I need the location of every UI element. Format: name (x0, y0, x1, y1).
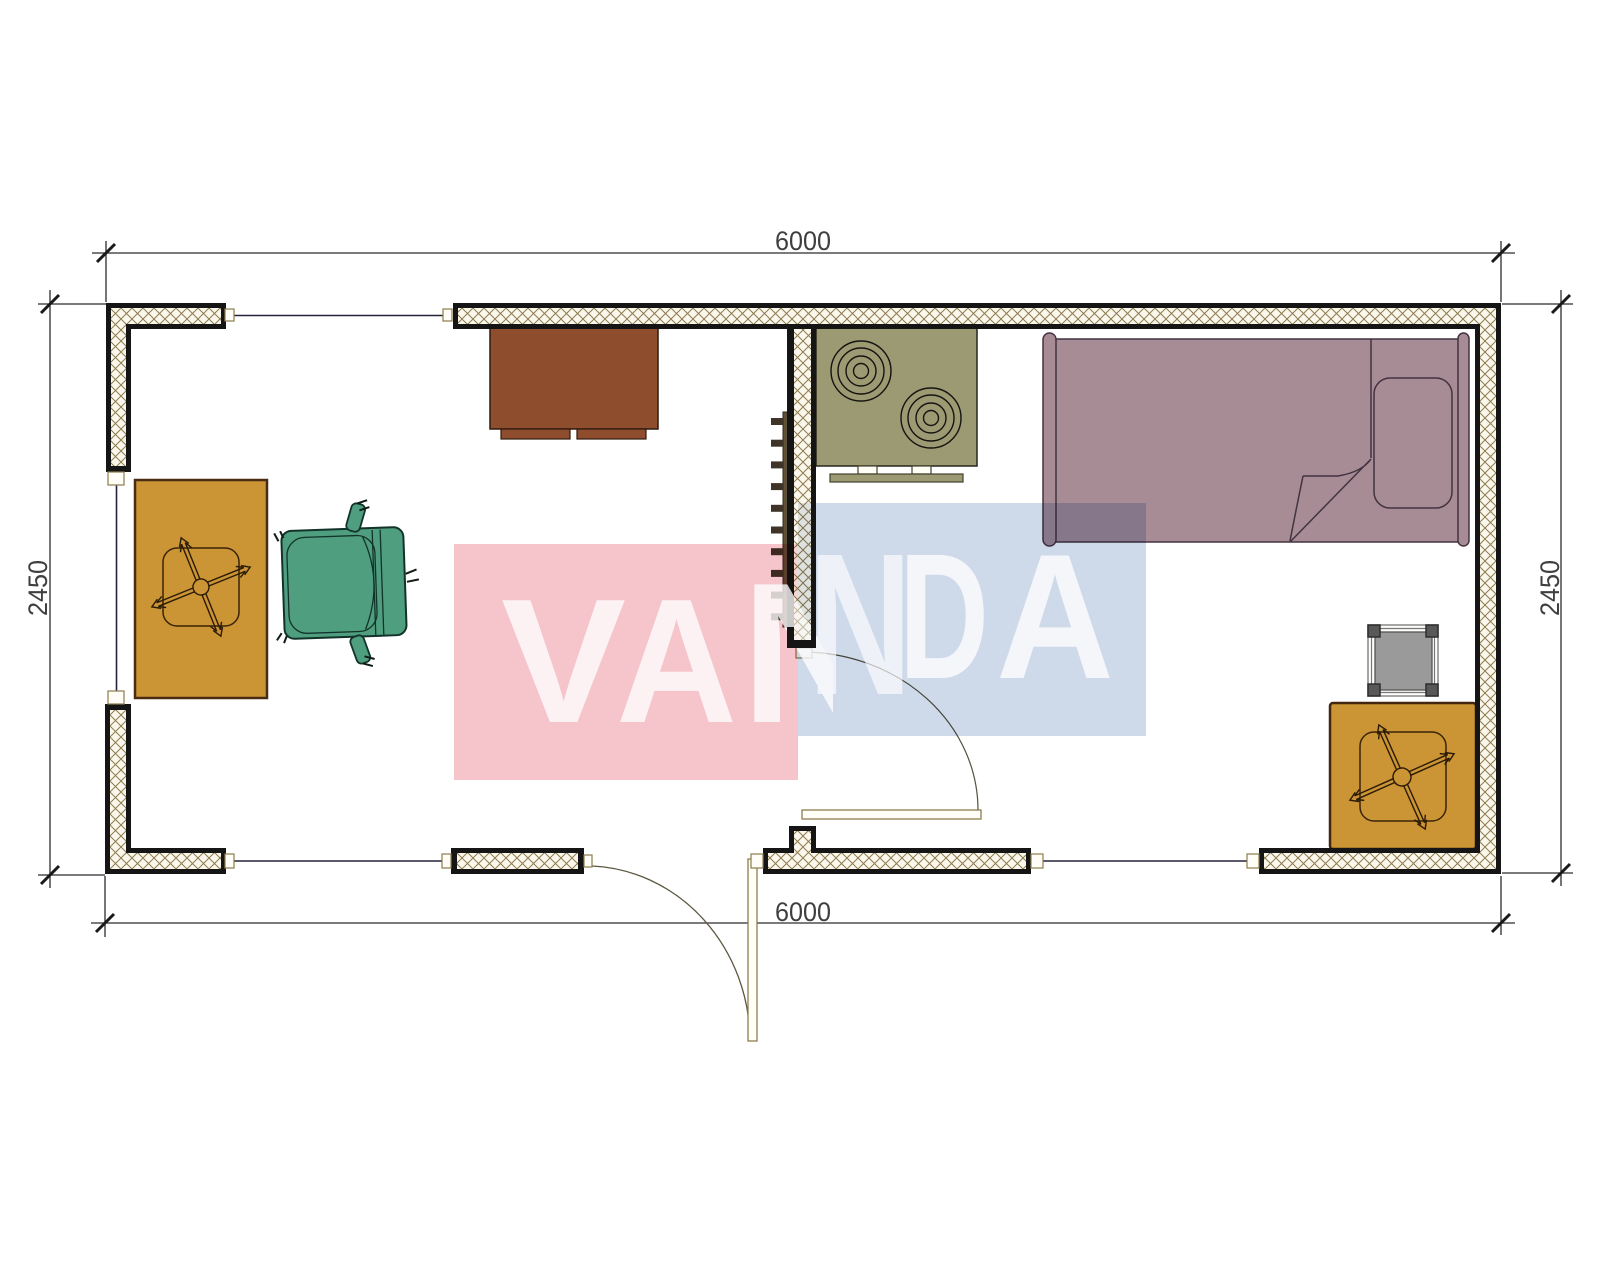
svg-text:2450: 2450 (1535, 560, 1565, 616)
svg-text:V: V (501, 562, 626, 760)
svg-text:N: N (808, 511, 912, 737)
svg-text:6000: 6000 (775, 897, 831, 927)
svg-text:A: A (616, 562, 737, 760)
svg-text:2450: 2450 (23, 560, 53, 616)
svg-text:A: A (996, 517, 1114, 716)
svg-text:D: D (899, 516, 989, 716)
svg-text:6000: 6000 (775, 226, 831, 256)
